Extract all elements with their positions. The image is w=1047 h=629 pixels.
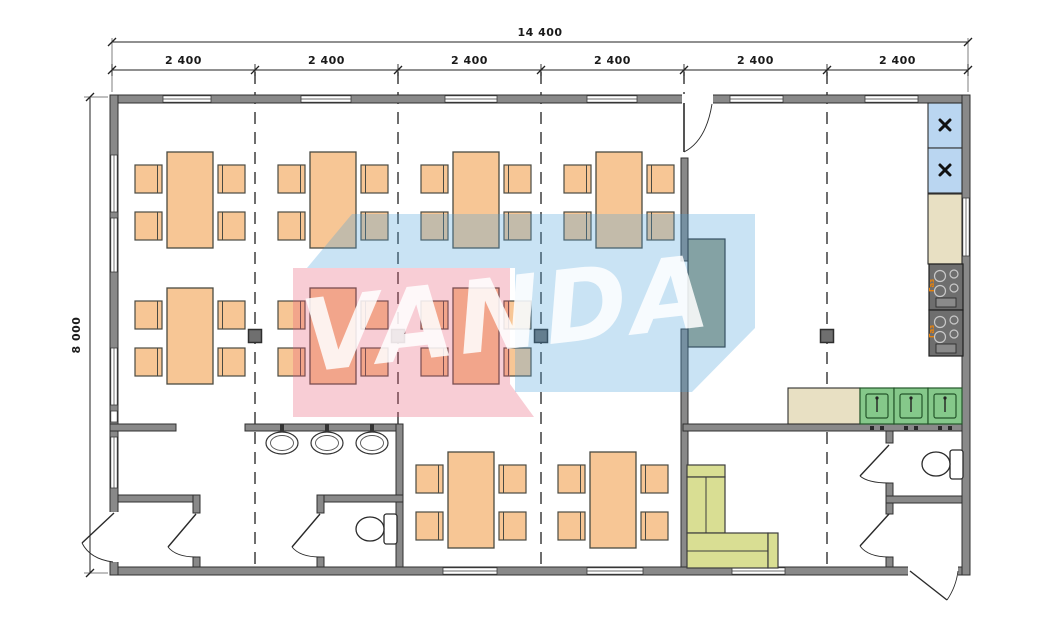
dim-segment: 2 400 xyxy=(451,54,488,67)
window xyxy=(111,218,117,272)
door-wc2-bottom xyxy=(860,514,889,557)
kitchen-worktop xyxy=(928,194,962,264)
wall-wc1-jamb-bottom xyxy=(317,557,324,567)
wall-wc2-jamb-top xyxy=(886,431,893,443)
dining-table-4-chairs xyxy=(278,288,388,384)
refrigerator xyxy=(928,148,962,193)
door-opening-top xyxy=(682,94,713,104)
kitchen-sink xyxy=(860,388,894,430)
window xyxy=(111,411,117,422)
wall-vestibule-jamb-top xyxy=(193,495,200,513)
toilet xyxy=(922,450,963,479)
stove-gas-label: Газ xyxy=(928,325,936,338)
floor-plan-drawing: Газ Газ xyxy=(0,0,1047,629)
column-marker xyxy=(535,330,548,343)
window xyxy=(732,568,785,574)
door-wc1 xyxy=(292,514,320,557)
wall-vestibule-jamb-bottom xyxy=(193,557,200,567)
kitchen-area: Газ Газ xyxy=(688,103,963,430)
wall-bottom xyxy=(110,567,970,575)
floor-plan-page: Газ Газ xyxy=(0,0,1047,629)
window xyxy=(963,198,969,256)
door-main-entrance xyxy=(684,103,712,152)
kitchen-sink xyxy=(928,388,962,430)
wall-wc1-jamb-top xyxy=(317,495,324,513)
window xyxy=(301,96,351,102)
corner-sofa xyxy=(687,465,778,568)
dining-table-4-chairs xyxy=(564,152,674,248)
dim-segment: 2 400 xyxy=(594,54,631,67)
dining-table-4-chairs xyxy=(278,152,388,248)
column-marker xyxy=(821,330,834,343)
toilet xyxy=(356,514,397,544)
wall-top xyxy=(110,95,970,103)
dim-segment: 2 400 xyxy=(879,54,916,67)
column-marker xyxy=(392,330,405,343)
dim-total-width: 14 400 xyxy=(517,26,562,39)
dining-table-4-chairs xyxy=(558,452,668,548)
window xyxy=(111,155,117,212)
dim-total-height: 8 000 xyxy=(70,317,83,354)
door-opening-left xyxy=(109,512,119,562)
wall-kitchen-divider-upper xyxy=(681,158,688,261)
dining-table-4-chairs xyxy=(421,288,531,384)
wall-kitchen-sinks xyxy=(683,424,962,431)
window xyxy=(111,437,117,488)
dining-table-4-chairs xyxy=(135,288,245,384)
column-marker xyxy=(249,330,262,343)
wall-wc1-top xyxy=(317,495,403,502)
stove: Газ xyxy=(928,310,963,356)
sink-counter xyxy=(788,388,860,424)
wall-washbasins xyxy=(245,424,403,431)
window xyxy=(865,96,918,102)
wall-washroom-stub xyxy=(110,424,176,431)
window xyxy=(111,348,117,405)
stove: Газ xyxy=(928,264,963,310)
dining-table-4-chairs xyxy=(416,452,526,548)
wall-wc2-divider xyxy=(886,496,962,503)
window xyxy=(445,96,497,102)
dim-segment: 2 400 xyxy=(165,54,202,67)
door-wc2-top xyxy=(860,445,889,483)
window xyxy=(587,568,643,574)
dim-segment: 2 400 xyxy=(737,54,774,67)
stove-gas-label: Газ xyxy=(928,279,936,292)
dining-area xyxy=(135,152,674,548)
window xyxy=(730,96,783,102)
window xyxy=(163,96,211,102)
window xyxy=(587,96,637,102)
dining-table-4-chairs xyxy=(421,152,531,248)
refrigerator xyxy=(928,103,962,148)
window xyxy=(443,568,497,574)
dim-segment: 2 400 xyxy=(308,54,345,67)
serving-counter xyxy=(688,239,725,347)
door-vestibule xyxy=(168,514,196,557)
wall-vestibule-top xyxy=(118,495,200,502)
wall-wc2-jamb-bottom xyxy=(886,557,893,567)
kitchen-sink xyxy=(894,388,928,430)
dining-table-4-chairs xyxy=(135,152,245,248)
